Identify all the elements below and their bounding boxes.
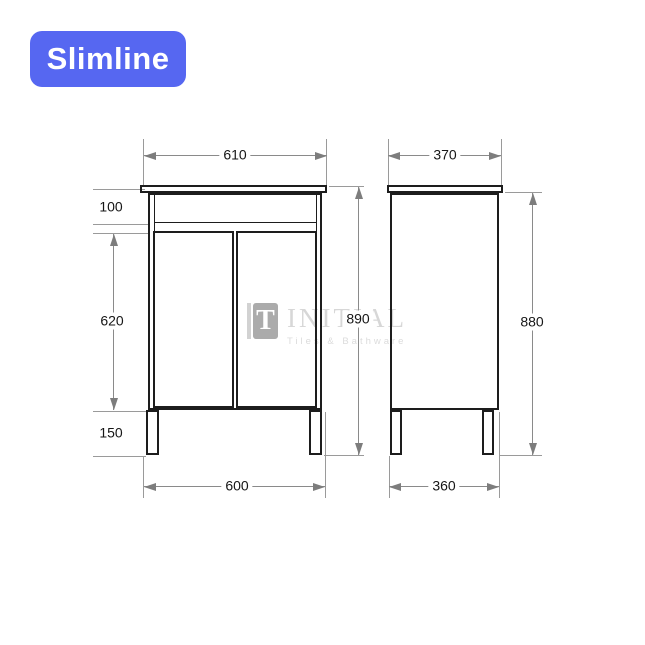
- dim-label-side-top-depth: 370: [429, 147, 460, 164]
- dim-600-arrow-right: [313, 483, 325, 491]
- dim-610-ext-right: [326, 139, 327, 185]
- dim-label-front-bottom-width: 600: [221, 478, 252, 495]
- dim-label-door-height: 620: [96, 313, 127, 330]
- brand-badge-label: Slimline: [47, 41, 170, 77]
- dim-label-front-overall-height: 890: [342, 311, 373, 328]
- dim-370-ext-left: [388, 139, 389, 185]
- dim-610-arrow-left: [144, 152, 156, 160]
- ext-door-top: [93, 233, 150, 234]
- dim-label-leg-height: 150: [95, 425, 126, 442]
- front-leg-right: [309, 410, 322, 455]
- dim-890-arrow-up: [355, 187, 363, 199]
- dim-label-apron-height: 100: [95, 199, 126, 216]
- dim-360-arrow-left: [389, 483, 401, 491]
- front-apron-rail-line: [154, 222, 316, 224]
- dim-370-arrow-left: [388, 152, 400, 160]
- dim-600-ext-left: [143, 456, 144, 498]
- dim-370-arrow-right: [489, 152, 501, 160]
- side-leg-right: [482, 410, 494, 455]
- front-countertop: [140, 185, 327, 193]
- dim-610-arrow-right: [315, 152, 327, 160]
- dim-890-arrow-down: [355, 443, 363, 455]
- dim-890-ext-bottom: [324, 455, 364, 456]
- brand-badge: Slimline: [30, 31, 186, 87]
- dim-880-ext-bottom: [499, 455, 542, 456]
- dim-label-side-overall-height: 880: [516, 314, 547, 331]
- dim-600-arrow-left: [144, 483, 156, 491]
- dim-370-ext-right: [501, 139, 502, 185]
- dim-880-arrow-up: [529, 193, 537, 205]
- dim-360-arrow-right: [487, 483, 499, 491]
- dim-360-ext-left: [389, 456, 390, 498]
- ext-apron-bottom: [93, 224, 148, 225]
- front-door-left: [153, 231, 234, 408]
- side-countertop: [387, 185, 503, 193]
- ext-leg-bottom: [93, 456, 146, 457]
- side-leg-left: [390, 410, 402, 455]
- dim-label-side-bottom-depth: 360: [428, 478, 459, 495]
- ext-apron-top: [93, 189, 145, 190]
- ext-door-bottom: [93, 411, 146, 412]
- dim-880-arrow-down: [529, 443, 537, 455]
- vanity-technical-drawing: Slimline T INITIAL Tiles & Bathware 610: [0, 0, 645, 645]
- dim-610-ext-left: [143, 139, 144, 185]
- front-leg-left: [146, 410, 159, 455]
- dim-620-arrow-down: [110, 398, 118, 410]
- dim-620-arrow-up: [110, 234, 118, 246]
- side-cabinet-body: [390, 193, 499, 410]
- dim-label-front-top-width: 610: [219, 147, 250, 164]
- front-door-right: [236, 231, 317, 408]
